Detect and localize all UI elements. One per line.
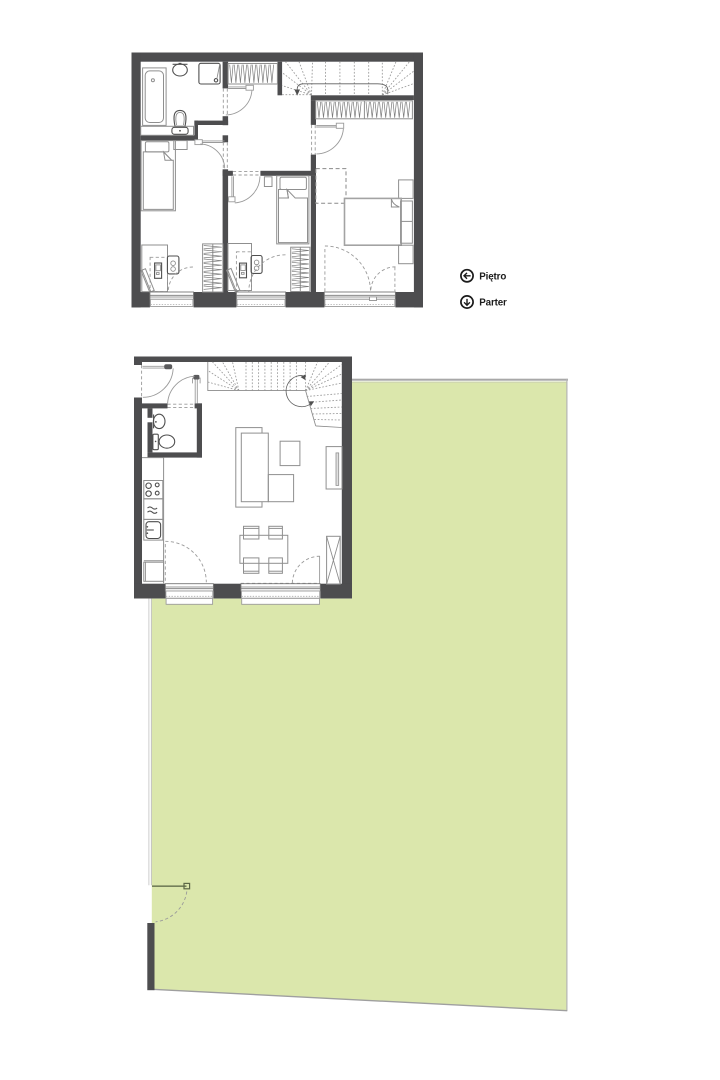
svg-text:Parter: Parter	[479, 298, 507, 309]
svg-text:Piętro: Piętro	[479, 271, 506, 282]
